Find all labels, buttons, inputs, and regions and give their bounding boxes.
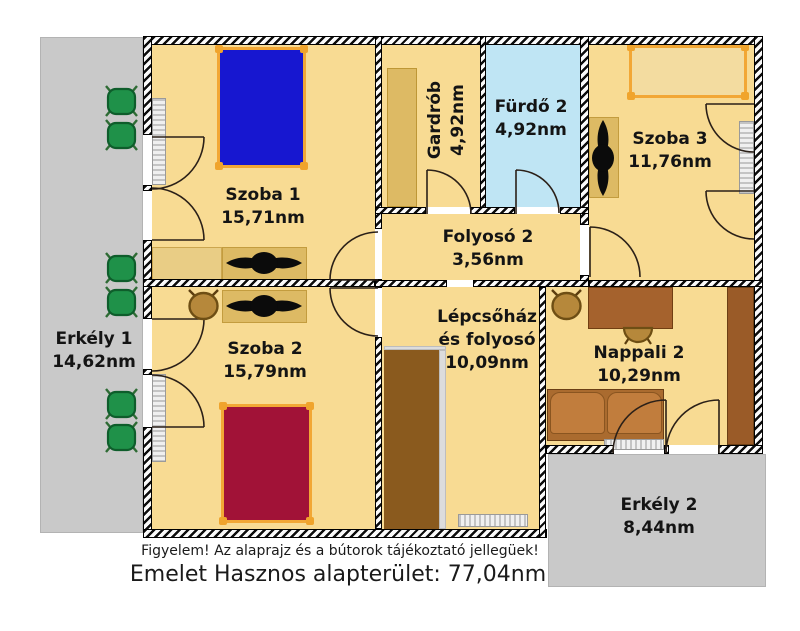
room-area: 14,62nm — [52, 351, 136, 374]
room-area: 4,92nm — [447, 81, 470, 159]
room-area: 3,56nm — [443, 249, 534, 272]
room-name: és folyosó — [437, 329, 537, 352]
wall-segment — [375, 207, 426, 214]
staircase — [384, 350, 439, 529]
room-label-szoba1: Szoba 1 15,71nm — [221, 184, 305, 230]
balcony-1 — [40, 37, 143, 533]
wall-segment — [718, 445, 763, 454]
room-name: Folyosó 2 — [443, 226, 534, 249]
bed-blue — [217, 47, 306, 168]
wall-segment — [375, 36, 382, 229]
closet — [387, 68, 417, 207]
total-area-text: Emelet Hasznos alapterület: 77,04nm — [130, 562, 546, 587]
room-name: Lépcsőház — [437, 306, 537, 329]
room-label-folyoso2: Folyosó 2 3,56nm — [443, 226, 534, 272]
room-area: 15,79nm — [223, 361, 307, 384]
disclaimer-text: Figyelem! Az alaprajz és a bútorok tájék… — [141, 543, 539, 559]
room-area: 15,71nm — [221, 207, 305, 230]
fan-table — [222, 247, 307, 281]
room-name: Szoba 1 — [221, 184, 305, 207]
wall-segment — [589, 280, 763, 287]
wall-segment — [754, 36, 763, 454]
radiator — [152, 374, 166, 462]
room-name: Szoba 3 — [628, 128, 712, 151]
wall-segment — [580, 36, 589, 225]
wall-segment — [539, 287, 546, 538]
wall-segment — [560, 207, 589, 214]
bed-red — [221, 404, 312, 523]
room-label-szoba2: Szoba 2 15,79nm — [223, 338, 307, 384]
room-area: 11,76nm — [628, 151, 712, 174]
room-name: Fürdő 2 — [495, 96, 568, 119]
bed-tan — [629, 45, 747, 98]
sofa-cushion — [550, 392, 605, 434]
room-name: Nappali 2 — [594, 342, 685, 365]
room-name: Szoba 2 — [223, 338, 307, 361]
room-area: 4,92nm — [495, 119, 568, 142]
room-area: 10,29nm — [594, 365, 685, 388]
room-name: Erkély 2 — [620, 494, 697, 517]
wall-segment — [546, 445, 614, 454]
room-label-erkely2: Erkély 2 8,44nm — [620, 494, 697, 540]
room-name: Erkély 1 — [52, 328, 136, 351]
radiator — [458, 514, 528, 527]
wall-segment — [473, 280, 589, 287]
wall-segment — [664, 445, 669, 454]
wall-segment — [143, 529, 547, 538]
wall-segment — [143, 36, 763, 45]
sofa-cushion — [607, 392, 662, 434]
floor-plan: Szoba 1 15,71nm Szoba 2 15,79nm Gardrób … — [0, 0, 800, 631]
wall-segment — [375, 337, 382, 529]
room-name: Gardrób — [424, 81, 447, 159]
wall-segment — [143, 369, 152, 375]
room-label-furdo2: Fürdő 2 4,92nm — [495, 96, 568, 142]
wall-segment — [143, 36, 152, 135]
room-label-lepcsohaz: Lépcsőház és folyosó 10,09nm — [437, 306, 537, 375]
fan-table — [589, 117, 619, 198]
room-area: 8,44nm — [620, 517, 697, 540]
radiator — [739, 121, 754, 194]
wall-segment — [480, 36, 486, 214]
wardrobe — [727, 287, 754, 445]
wall-segment — [470, 207, 515, 214]
wall-segment — [143, 427, 152, 538]
fan-table — [222, 290, 307, 323]
desk — [588, 287, 673, 329]
stair-rail — [439, 350, 446, 529]
wall-segment — [143, 185, 152, 191]
wall-segment — [375, 280, 447, 287]
room-label-szoba3: Szoba 3 11,76nm — [628, 128, 712, 174]
dresser — [152, 247, 222, 281]
wall-segment — [143, 279, 375, 287]
room-area: 10,09nm — [437, 352, 537, 375]
room-label-nappali2: Nappali 2 10,29nm — [594, 342, 685, 388]
room-label-gardrob: Gardrób 4,92nm — [424, 81, 470, 159]
radiator — [152, 98, 166, 185]
room-label-erkely1: Erkély 1 14,62nm — [52, 328, 136, 374]
